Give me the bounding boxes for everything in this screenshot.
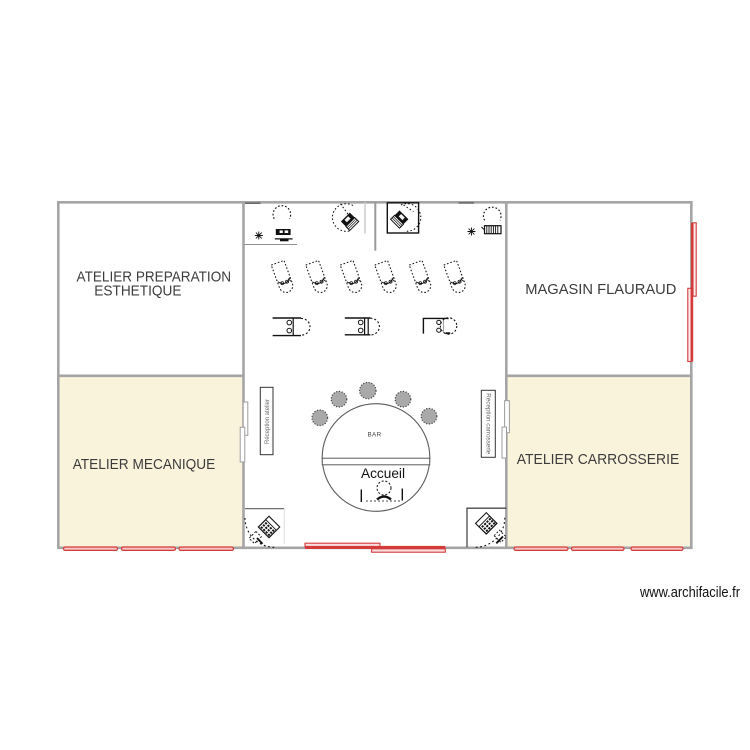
svg-text:Réception atelier: Réception atelier — [264, 399, 271, 444]
svg-text:www.archifacile.fr: www.archifacile.fr — [639, 585, 740, 601]
svg-text:ATELIER CARROSSERIE: ATELIER CARROSSERIE — [517, 451, 680, 468]
svg-text:MAGASIN FLAURAUD: MAGASIN FLAURAUD — [525, 281, 676, 298]
svg-text:Réception carrosserie: Réception carrosserie — [484, 393, 491, 454]
svg-text:ESTHETIQUE: ESTHETIQUE — [94, 282, 181, 299]
svg-text:BAR: BAR — [368, 431, 382, 438]
svg-text:Accueil: Accueil — [361, 465, 405, 481]
svg-text:ATELIER MECANIQUE: ATELIER MECANIQUE — [73, 456, 216, 473]
